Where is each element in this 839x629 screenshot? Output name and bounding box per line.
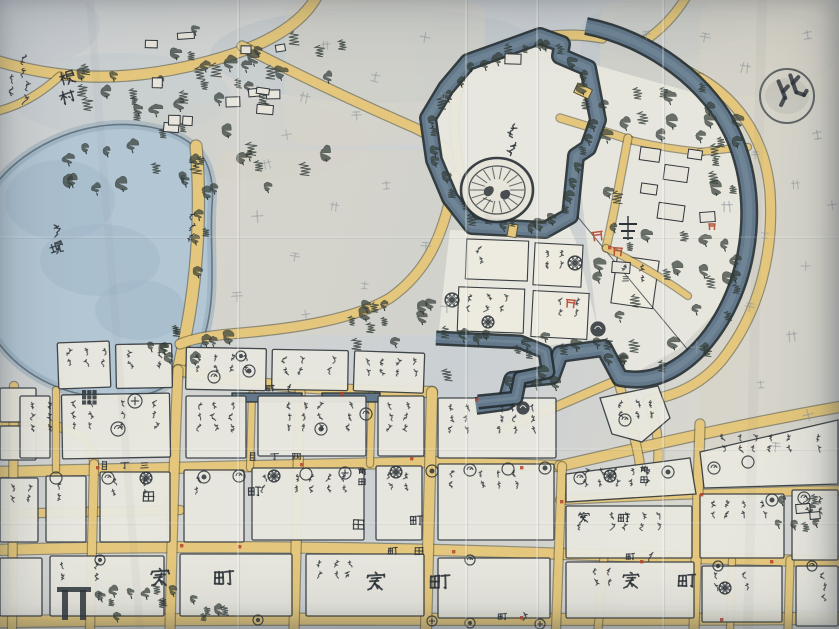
castle-keep-emblem bbox=[461, 158, 533, 222]
map-canvas bbox=[0, 0, 839, 629]
castle-town-map bbox=[0, 0, 839, 629]
